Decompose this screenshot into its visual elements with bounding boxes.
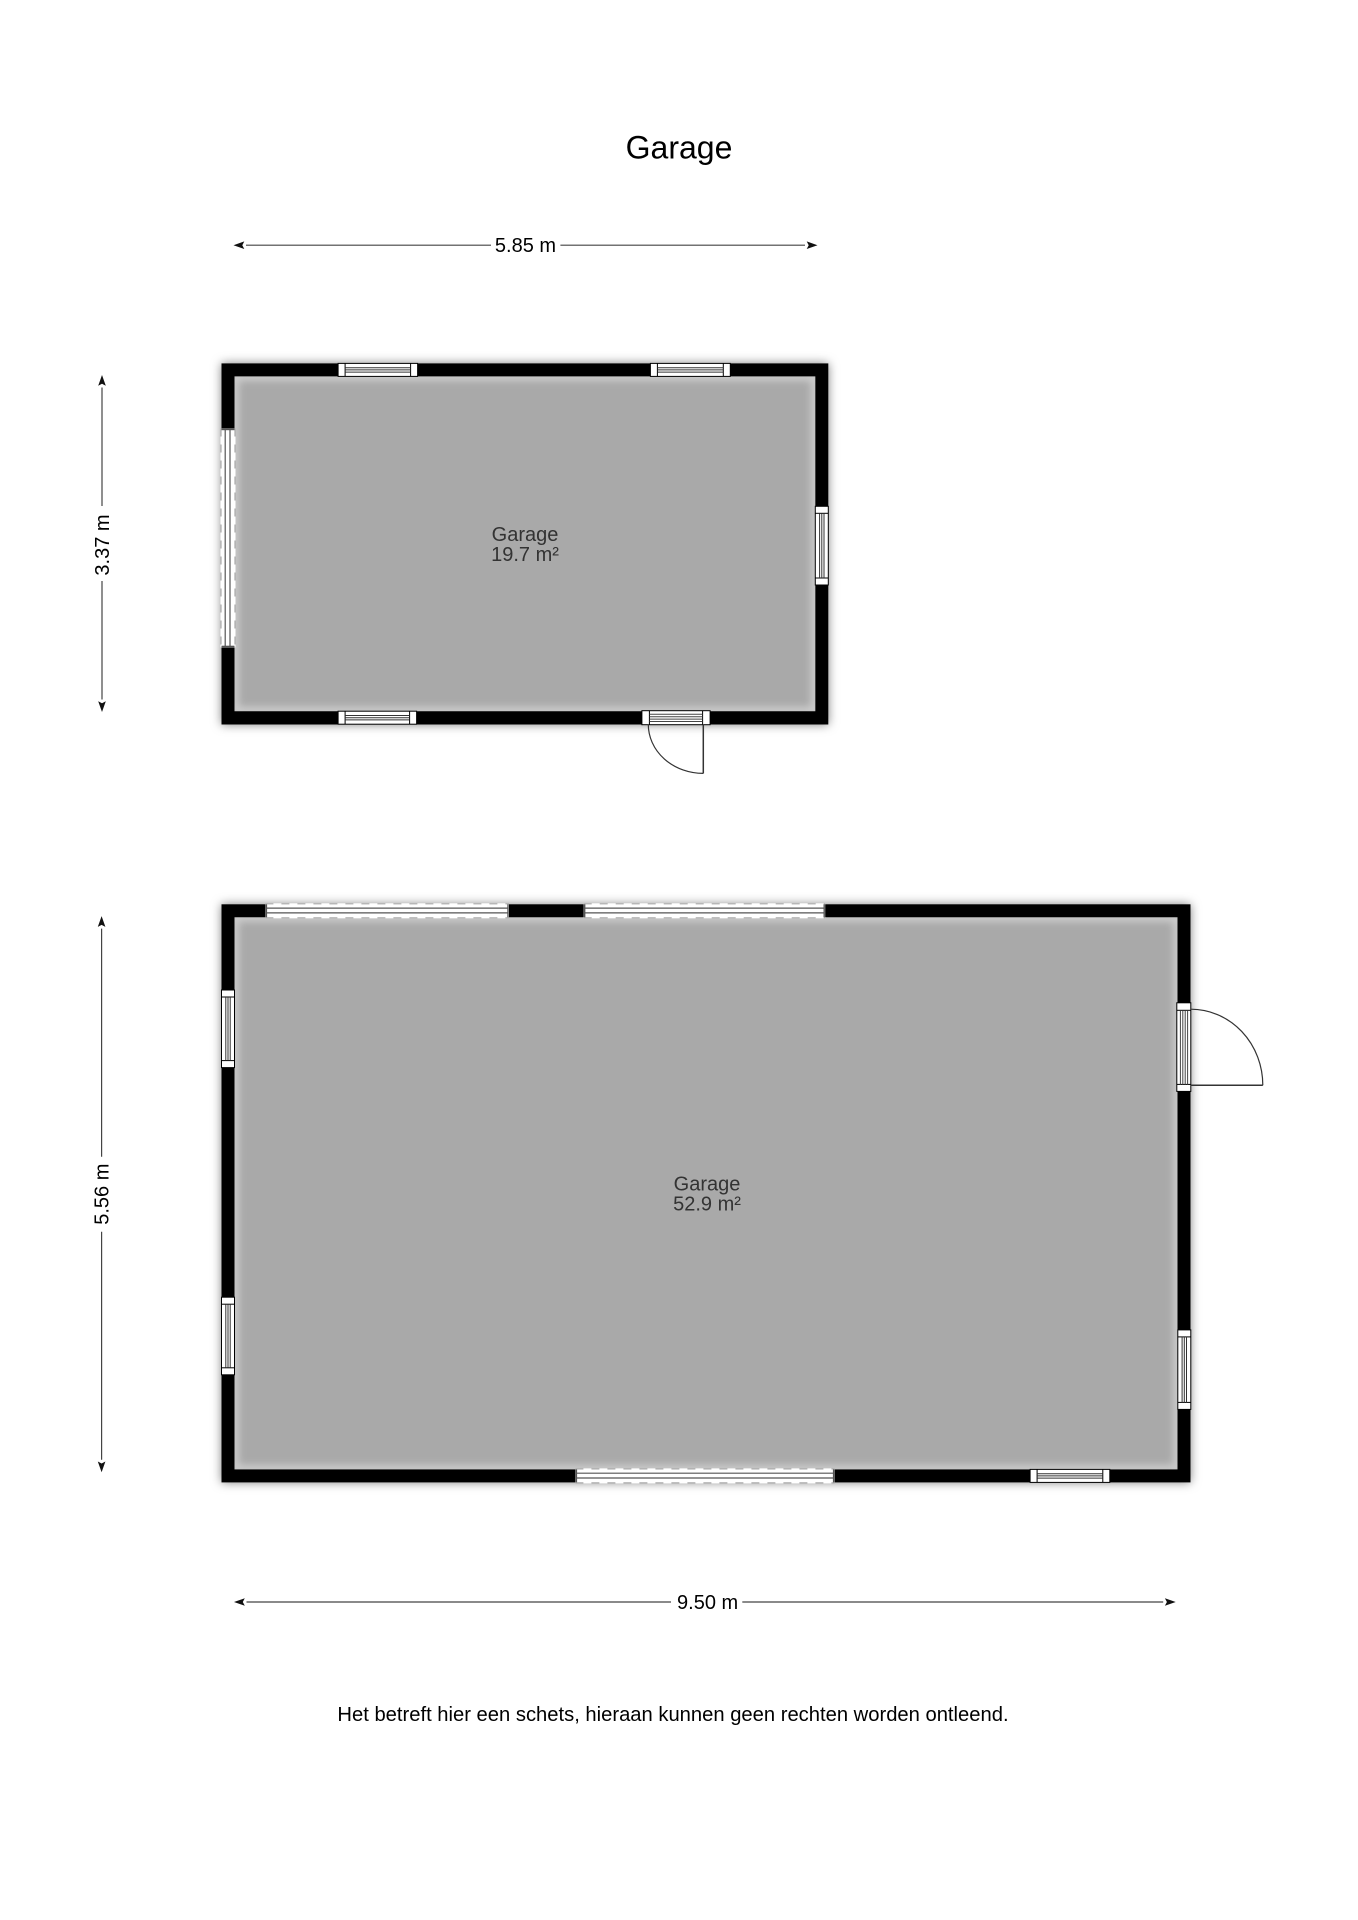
svg-text:19.7 m²: 19.7 m²: [491, 544, 559, 566]
svg-text:Het betreft hier een schets, h: Het betreft hier een schets, hieraan kun…: [337, 1704, 1008, 1726]
svg-text:Garage: Garage: [492, 524, 559, 546]
svg-text:Garage: Garage: [674, 1174, 741, 1196]
svg-text:5.85 m: 5.85 m: [495, 235, 556, 257]
svg-text:52.9 m²: 52.9 m²: [673, 1194, 741, 1216]
svg-text:9.50 m: 9.50 m: [677, 1592, 738, 1614]
svg-text:Garage: Garage: [626, 130, 733, 166]
svg-text:5.56 m: 5.56 m: [91, 1164, 113, 1225]
svg-text:3.37 m: 3.37 m: [92, 514, 114, 575]
